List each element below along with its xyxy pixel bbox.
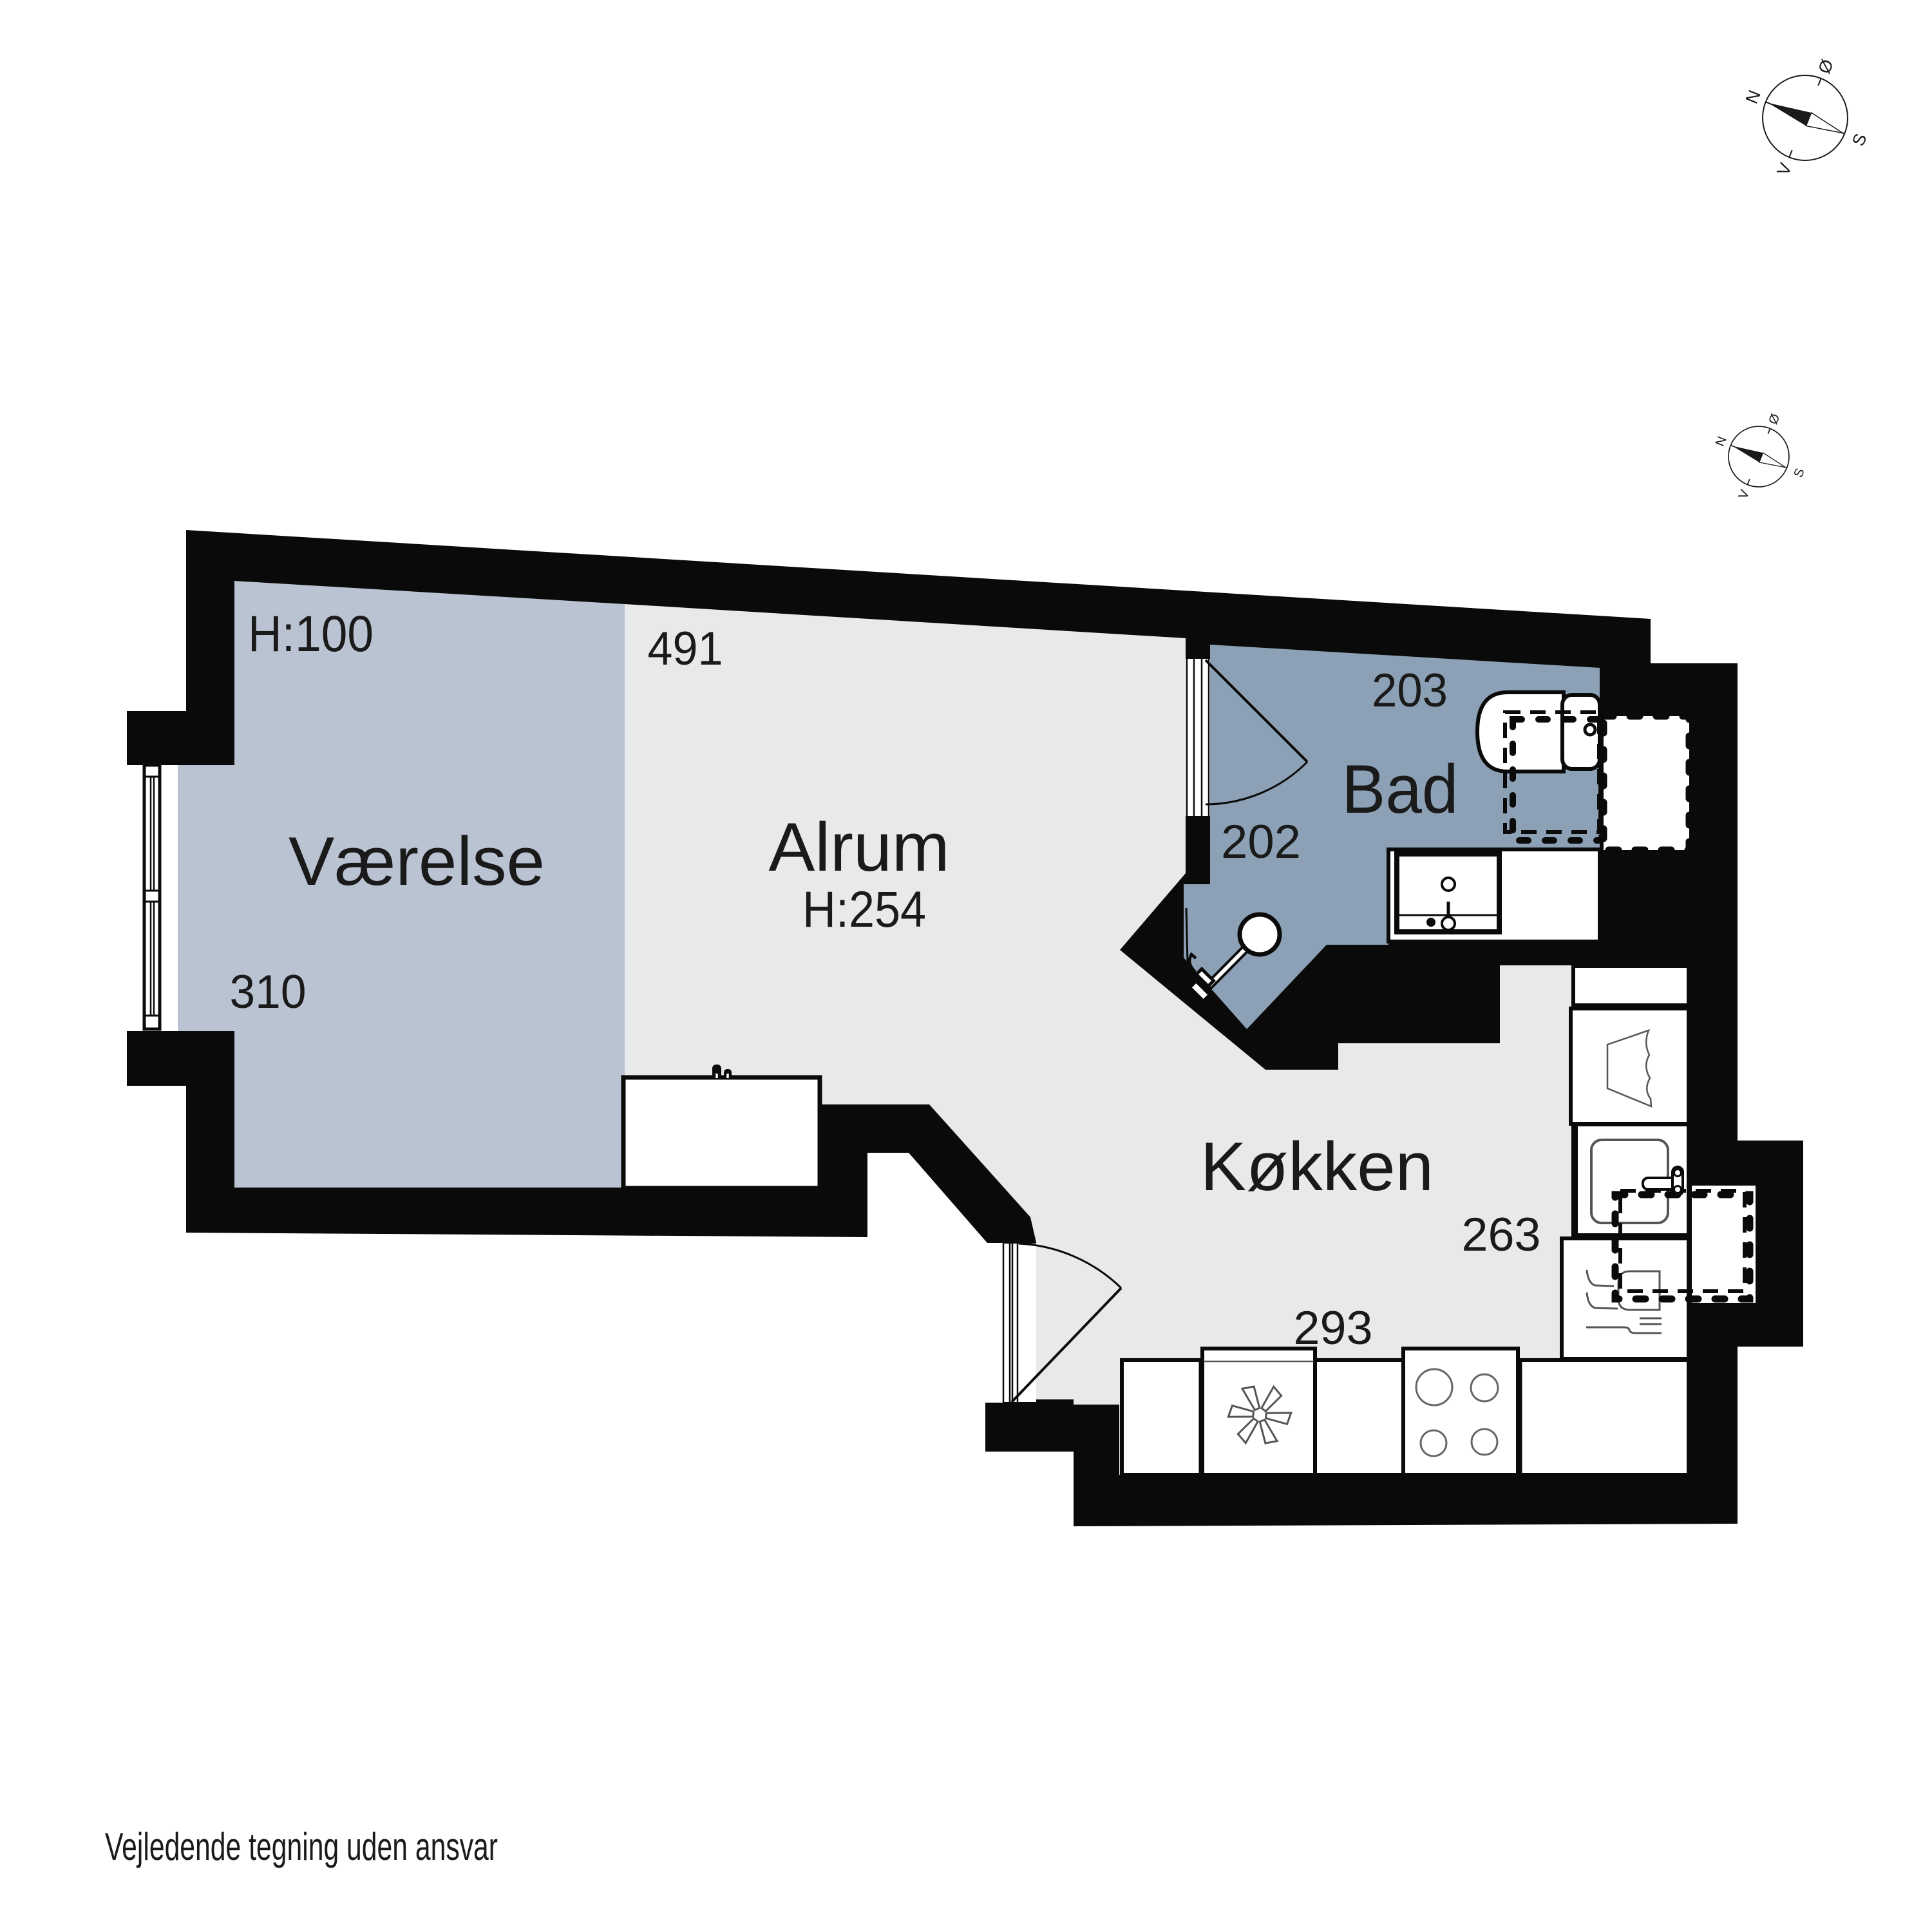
svg-text:Bad: Bad bbox=[1342, 750, 1459, 828]
svg-text:H:100: H:100 bbox=[248, 605, 374, 662]
svg-text:203: 203 bbox=[1372, 665, 1448, 717]
svg-text:491: 491 bbox=[648, 623, 723, 675]
svg-text:202: 202 bbox=[1221, 816, 1301, 868]
svg-text:Værelse: Værelse bbox=[289, 822, 545, 900]
svg-text:263: 263 bbox=[1462, 1209, 1541, 1261]
svg-text:Køkken: Køkken bbox=[1200, 1128, 1434, 1205]
svg-text:310: 310 bbox=[230, 966, 307, 1018]
svg-text:H:254: H:254 bbox=[802, 880, 926, 938]
svg-text:Alrum: Alrum bbox=[769, 808, 950, 885]
svg-text:Vejledende tegning uden ansvar: Vejledende tegning uden ansvar bbox=[105, 1825, 498, 1868]
svg-text:293: 293 bbox=[1294, 1302, 1373, 1354]
